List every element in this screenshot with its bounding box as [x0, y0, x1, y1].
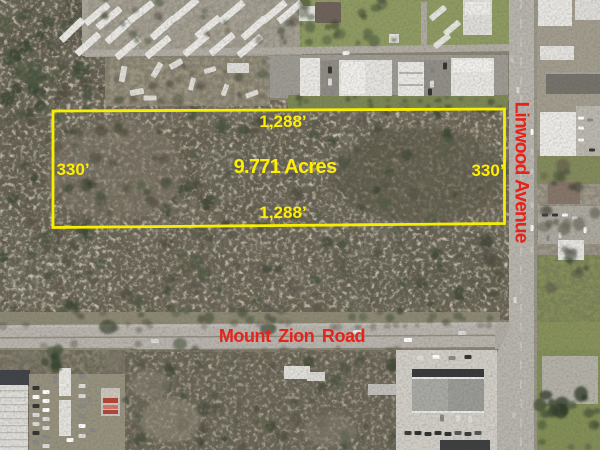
- svg-text:1,288’: 1,288’: [259, 203, 306, 222]
- svg-text:9.771 Acres: 9.771 Acres: [234, 156, 337, 178]
- svg-text:1,288’: 1,288’: [259, 112, 306, 131]
- svg-text:330’: 330’: [56, 160, 89, 179]
- svg-text:Mount Zion Road: Mount Zion Road: [219, 326, 365, 346]
- svg-text:Linwood Avenue: Linwood Avenue: [511, 102, 533, 244]
- svg-text:330’: 330’: [471, 161, 504, 180]
